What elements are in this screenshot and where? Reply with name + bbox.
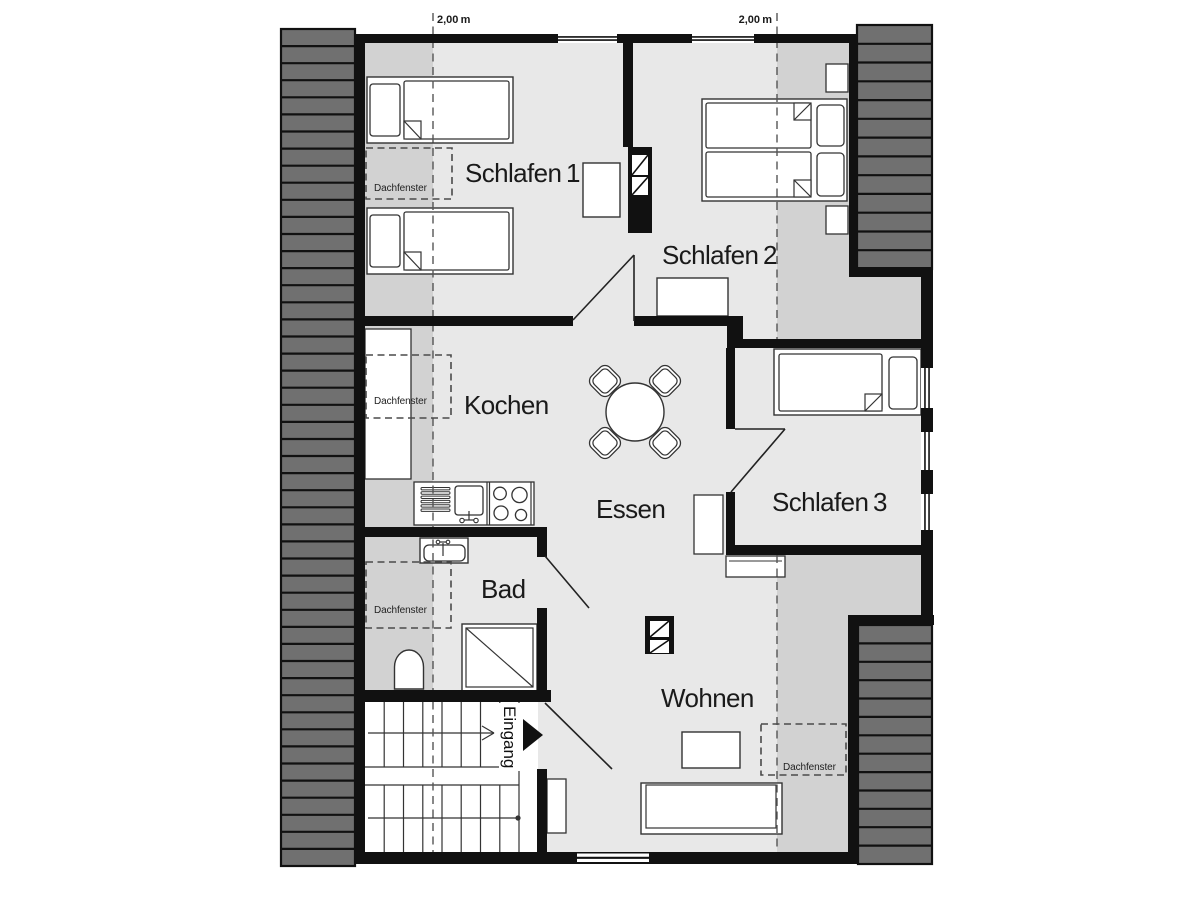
svg-text:Schlafen 2: Schlafen 2 bbox=[662, 240, 777, 270]
svg-text:Dachfenster: Dachfenster bbox=[783, 762, 837, 773]
svg-text:Dachfenster: Dachfenster bbox=[374, 183, 428, 194]
svg-text:Schlafen 3: Schlafen 3 bbox=[772, 487, 887, 517]
svg-text:Essen: Essen bbox=[596, 494, 665, 524]
svg-text:Bad: Bad bbox=[481, 574, 525, 604]
svg-text:Wohnen: Wohnen bbox=[661, 683, 754, 713]
svg-text:2,00 m: 2,00 m bbox=[739, 14, 773, 26]
svg-text:Eingang: Eingang bbox=[500, 706, 519, 768]
svg-text:2,00 m: 2,00 m bbox=[437, 14, 471, 26]
svg-text:Dachfenster: Dachfenster bbox=[374, 396, 428, 407]
svg-text:Schlafen 1: Schlafen 1 bbox=[465, 158, 580, 188]
svg-text:Kochen: Kochen bbox=[464, 390, 549, 420]
svg-text:Dachfenster: Dachfenster bbox=[374, 605, 428, 616]
